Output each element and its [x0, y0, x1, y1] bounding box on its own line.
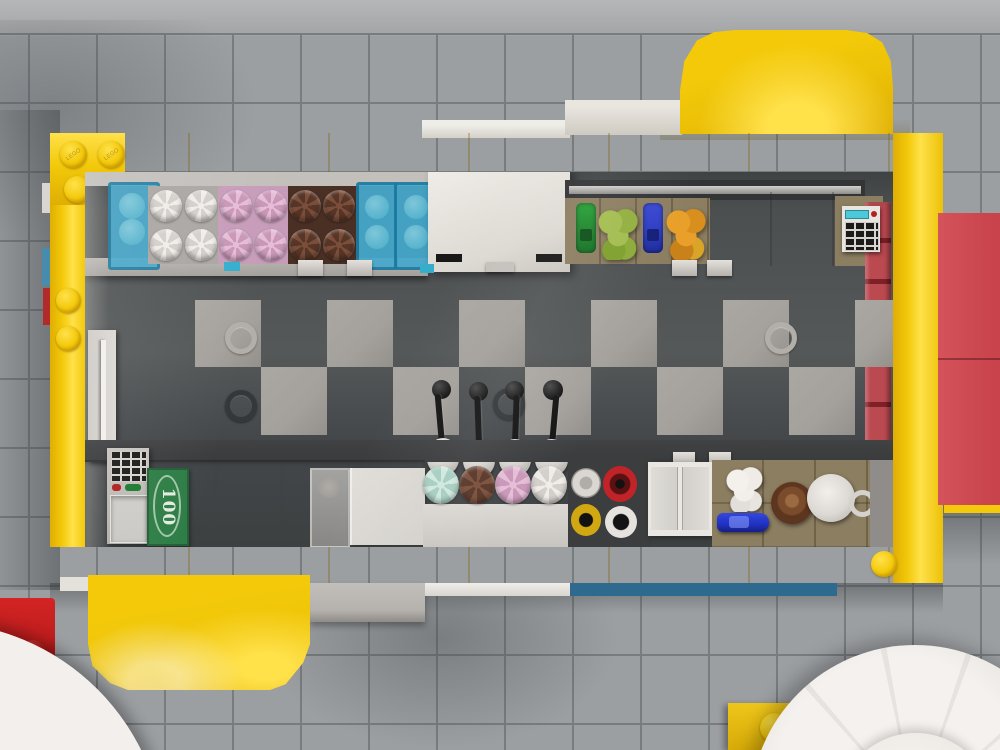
chocolate-swirl [323, 229, 355, 261]
register-tray [110, 495, 148, 543]
white-cup [571, 468, 601, 498]
gray-counter-top-right [710, 192, 835, 266]
shelf-tab [672, 260, 697, 276]
bin-circle [404, 195, 428, 219]
bottom-bar-stud [871, 551, 897, 577]
machine-slot-right [536, 254, 562, 262]
strawberry-swirl [255, 190, 287, 222]
white-cabinet [350, 468, 425, 545]
swirl-shelf-front [423, 504, 569, 547]
bottle-cap [647, 229, 659, 241]
floor-ring [225, 390, 257, 422]
chocolate-swirl [323, 190, 355, 222]
giant-swirl-center [838, 733, 993, 750]
blue-bottle [643, 203, 663, 253]
box-panel-right [682, 467, 709, 530]
checker-tile [327, 300, 393, 367]
strawberry-swirl-single [495, 466, 531, 504]
frame-left-rail [50, 172, 85, 547]
red-table-seam [938, 358, 1000, 360]
white-tab-left-of-cab [60, 577, 90, 591]
chocolate-swirl-single [459, 466, 495, 504]
frame-right-rail [893, 133, 943, 583]
truck-cab-bottom [88, 575, 310, 690]
strawberry-swirl [220, 190, 252, 222]
terminal-display [845, 210, 869, 219]
black-white-cup [605, 506, 637, 538]
terminal-red-light [871, 211, 877, 217]
blue-bin-right-1 [356, 182, 398, 270]
left-rail-stud-2 [56, 326, 81, 351]
lever-arm [549, 395, 559, 445]
white-strip-below [425, 583, 570, 596]
floor-ring [225, 322, 257, 354]
bin-circle [365, 195, 389, 219]
lever-arm [474, 396, 482, 444]
machine-drawer-tab [486, 262, 514, 272]
checker-tile [591, 300, 657, 367]
fridge-handle [101, 340, 106, 452]
shelf-tab [347, 260, 372, 276]
orange-fruits [665, 206, 707, 260]
cash-register [107, 448, 149, 544]
car-windshield [729, 516, 749, 528]
register-green-button [125, 484, 141, 491]
counter-corner-gray [870, 460, 893, 547]
hundred-bill: 100 [147, 468, 189, 546]
checker-tile [459, 300, 525, 367]
keypad-terminal [842, 206, 880, 252]
vanilla-swirl [150, 190, 182, 222]
lever-arm [512, 395, 520, 444]
corner-stud-2: LEGO [98, 141, 125, 168]
lego-truck-render: LEGO LEGO [0, 0, 1000, 750]
chocolate-swirl [289, 229, 321, 261]
red-table-yellow-edge [944, 505, 1000, 513]
register-keys [111, 451, 147, 482]
bin-circle [365, 225, 389, 249]
vanilla-swirl [185, 190, 217, 222]
vanilla-swirl-single [531, 466, 567, 504]
red-table [938, 213, 1000, 505]
white-mug [807, 474, 855, 522]
green-bottle [576, 203, 596, 253]
vanilla-swirl [185, 229, 217, 261]
chocolate-swirl [289, 190, 321, 222]
drinking-glass [310, 468, 350, 547]
green-apples [597, 206, 639, 260]
floor-ring [765, 322, 797, 354]
checker-tile [855, 300, 893, 367]
truck-interior: 100 [85, 172, 893, 547]
soft-serve-machine [428, 172, 570, 272]
toy-car [717, 513, 769, 532]
shelf-tab [707, 260, 732, 276]
checker-tile [789, 367, 855, 435]
checker-tile [657, 367, 723, 435]
bill-denomination: 100 [158, 485, 178, 529]
bin-circle [404, 225, 428, 249]
vanilla-swirl [150, 229, 182, 261]
cyan-clip [224, 262, 240, 271]
chocolate-tub-block [288, 186, 356, 264]
glass-swirl-hint [318, 476, 340, 498]
red-cup [603, 466, 637, 502]
left-rail-stud-1 [56, 288, 81, 313]
strawberry-tub-block [218, 186, 288, 264]
yellow-cup [571, 504, 601, 536]
terminal-keys [845, 222, 879, 251]
checker-tile [261, 367, 327, 435]
bin-circle [119, 193, 145, 219]
lever-arm [435, 394, 445, 444]
counter-shadow-strip [85, 440, 893, 462]
register-red-button [112, 484, 121, 491]
blue-strip-below [570, 583, 837, 596]
cyan-clip [420, 264, 434, 273]
machine-slot-left [436, 254, 462, 262]
corner-stud-1: LEGO [60, 141, 87, 168]
bin-circle [119, 219, 145, 245]
whipped-cream [723, 466, 765, 512]
gray-panel-below [310, 583, 425, 622]
shelf-tab [298, 260, 323, 276]
mint-swirl [423, 466, 459, 504]
white-ledge-large [565, 100, 682, 135]
frame-top-bar [50, 133, 943, 172]
truck-cab-top [680, 30, 893, 134]
box-panel-left [651, 467, 678, 530]
strawberry-swirl [220, 229, 252, 261]
strawberry-swirl [255, 229, 287, 261]
open-white-box [648, 462, 712, 536]
bottle-cap [580, 229, 592, 241]
vanilla-tub-block [148, 186, 218, 264]
